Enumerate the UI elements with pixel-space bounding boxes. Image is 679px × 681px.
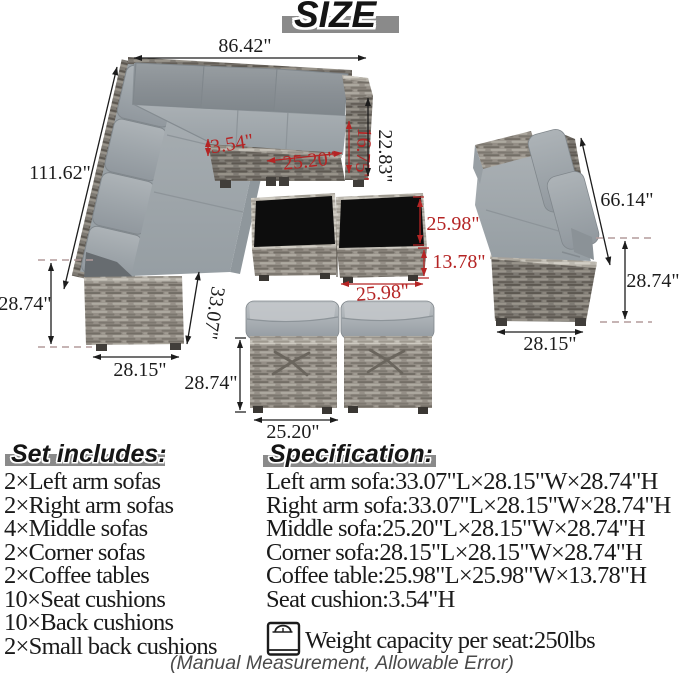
svg-text:25.98": 25.98" (426, 213, 479, 235)
svg-text:16.75": 16.75" (351, 127, 376, 181)
svg-text:22.83": 22.83" (374, 129, 396, 182)
svg-text:86.42": 86.42" (218, 35, 271, 57)
svg-text:28.15": 28.15" (113, 359, 166, 381)
svg-text:13.78": 13.78" (432, 251, 485, 273)
svg-text:33.07": 33.07" (199, 285, 229, 341)
svg-text:28.74": 28.74" (0, 293, 52, 315)
svg-text:28.15": 28.15" (523, 333, 576, 355)
svg-text:66.14": 66.14" (600, 189, 653, 211)
svg-text:28.74": 28.74" (184, 372, 237, 394)
svg-text:28.74": 28.74" (626, 270, 679, 292)
svg-text:25.98": 25.98" (355, 280, 410, 306)
svg-text:111.62": 111.62" (29, 162, 91, 184)
